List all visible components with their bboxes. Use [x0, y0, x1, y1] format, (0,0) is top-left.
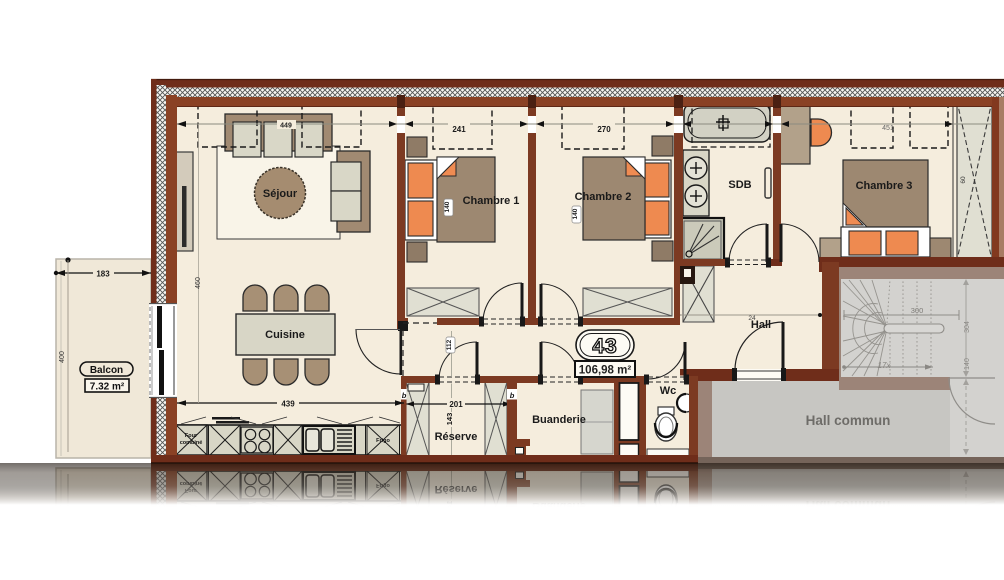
- svg-text:SDB: SDB: [728, 179, 751, 191]
- svg-text:400: 400: [59, 351, 66, 363]
- svg-text:60: 60: [960, 176, 967, 184]
- svg-text:43: 43: [592, 335, 617, 358]
- svg-text:Chambre 3: Chambre 3: [856, 180, 913, 192]
- svg-text:Wc: Wc: [660, 385, 677, 397]
- svg-text:143: 143: [445, 413, 454, 426]
- svg-text:439: 439: [281, 400, 295, 409]
- svg-text:7.32 m²: 7.32 m²: [90, 382, 125, 393]
- svg-text:Frigo: Frigo: [376, 438, 390, 444]
- svg-text:Hall commun: Hall commun: [806, 413, 891, 428]
- svg-text:451: 451: [882, 125, 894, 132]
- svg-text:Hall: Hall: [751, 319, 771, 331]
- svg-text:106,98 m²: 106,98 m²: [579, 365, 632, 377]
- svg-text:Réserve: Réserve: [435, 431, 478, 443]
- svg-text:Séjour: Séjour: [263, 188, 298, 200]
- svg-text:Buanderie: Buanderie: [532, 414, 586, 426]
- svg-text:241: 241: [452, 125, 466, 134]
- svg-text:Balcon: Balcon: [90, 365, 123, 376]
- svg-text:Cuisine: Cuisine: [265, 329, 305, 341]
- svg-text:b: b: [402, 391, 407, 400]
- svg-text:b: b: [510, 391, 515, 400]
- svg-text:17x: 17x: [878, 361, 892, 370]
- svg-text:Chambre 2: Chambre 2: [575, 191, 632, 203]
- svg-text:Chambre 1: Chambre 1: [463, 195, 520, 207]
- svg-text:270: 270: [597, 125, 611, 134]
- svg-text:140: 140: [964, 358, 971, 370]
- svg-text:300: 300: [911, 306, 924, 315]
- svg-text:Four: Four: [185, 433, 198, 439]
- svg-text:140: 140: [572, 208, 579, 219]
- svg-text:183: 183: [96, 270, 110, 279]
- svg-text:201: 201: [449, 400, 463, 409]
- svg-text:449: 449: [280, 123, 292, 130]
- svg-text:112: 112: [446, 339, 453, 350]
- svg-text:140: 140: [444, 201, 451, 212]
- svg-text:460: 460: [195, 277, 202, 289]
- svg-text:combiné: combiné: [180, 440, 203, 446]
- svg-text:304: 304: [964, 321, 971, 333]
